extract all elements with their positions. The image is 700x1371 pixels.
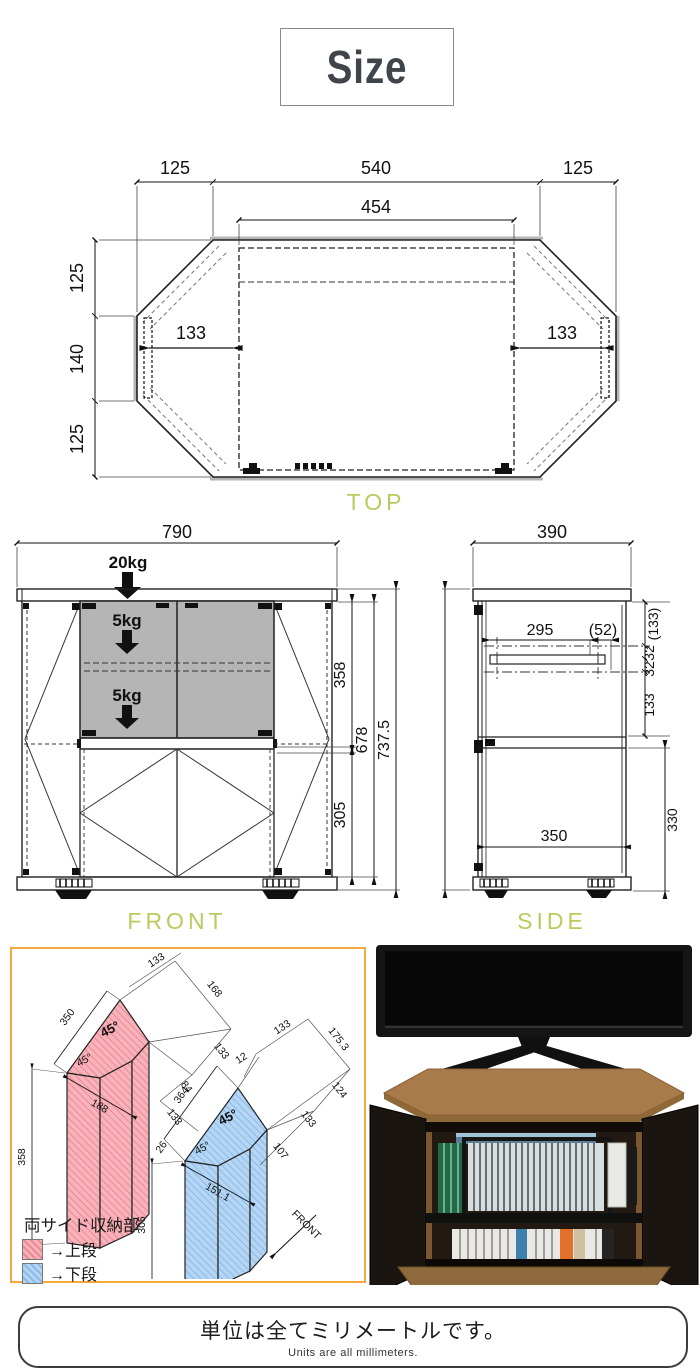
units-note-jp: 単位は全てミリメートルです。 [200, 1315, 506, 1345]
dim-depth-mid: 140 [67, 344, 87, 374]
dvd-row [468, 1143, 604, 1211]
units-note-banner: 単位は全てミリメートルです。 Units are all millimeters… [18, 1306, 688, 1368]
lower-edge-s: 26 [153, 1139, 170, 1156]
top-view-linework [92, 179, 618, 479]
dim-top-center: 540 [361, 158, 391, 178]
dim-depth-top: 125 [67, 263, 87, 293]
upper-f4: 133 [164, 1107, 184, 1128]
dim-seg-32b: 32 [641, 661, 657, 677]
cabinet-top [384, 1069, 684, 1115]
page: Size [0, 0, 700, 1371]
units-note-en: Units are all millimeters. [288, 1347, 418, 1359]
size-title-box: Size [280, 28, 454, 106]
load-lower: 5kg [112, 686, 141, 705]
dim-pocket-right: 133 [547, 323, 577, 343]
side-view-label: SIDE [517, 908, 587, 934]
dim-rail-gap: (52) [589, 622, 617, 639]
upper-red-swatch [22, 1239, 43, 1260]
lower-f3: 133 [298, 1109, 318, 1130]
lower-f4: 107 [270, 1141, 290, 1162]
lower-top-w: 133 [272, 1018, 293, 1038]
white-console [608, 1143, 626, 1207]
front-view-drawing: 790 20kg 5kg 5kg 358 305 678 737.5 FRONT [0, 525, 460, 940]
left-door [370, 1105, 426, 1285]
dim-pocket-left: 133 [176, 323, 206, 343]
lower-f2: 124 [329, 1080, 349, 1101]
iso-lower-prism [152, 1019, 350, 1279]
middle-shelf [426, 1213, 642, 1223]
upper-top-w: 133 [146, 951, 167, 971]
dim-rail: 295 [527, 622, 554, 639]
dim-upper-height: 358 [332, 662, 349, 689]
top-view-label: TOP [347, 489, 406, 515]
upper-edge-len: 350 [58, 1006, 78, 1027]
side-view-drawing: 390 295 (52) 350 (133) 32 32 133 330 SID… [440, 525, 700, 940]
dim-top-right: 125 [563, 158, 593, 178]
front-view-linework [17, 543, 400, 899]
cabinet-base [398, 1267, 670, 1285]
dim-side-depth: 390 [537, 525, 567, 542]
lower-top-s: 12 [233, 1050, 249, 1067]
top-view-drawing: 125 540 125 454 125 140 125 133 133 TOP [0, 140, 700, 525]
legend-upper-label: →上段 [49, 1237, 97, 1261]
dim-inner-width: 454 [361, 197, 391, 217]
legend-lower-label: →下段 [49, 1261, 97, 1285]
lower-f1: 175.3 [326, 1025, 352, 1053]
dim-seg-32a: 32 [641, 645, 657, 661]
dim-front-width: 790 [162, 525, 192, 542]
page-title: Size [327, 40, 408, 94]
load-upper: 5kg [112, 611, 141, 630]
upper-f2: 133 [211, 1041, 231, 1062]
iso-labels: 45° 45° 350 358 188 133 168 133 84 133 4… [16, 951, 351, 1243]
upper-f1: 168 [204, 979, 224, 1000]
dim-top-left: 125 [160, 158, 190, 178]
side-storage-diagram-box: 45° 45° 350 358 188 133 168 133 84 133 4… [10, 947, 366, 1283]
dim-seg-133: 133 [641, 693, 657, 717]
upper-height: 358 [16, 1148, 28, 1166]
side-view-labels: 390 295 (52) 350 (133) 32 32 133 330 SID… [517, 525, 680, 934]
right-door [642, 1105, 698, 1285]
dim-lower-height: 305 [332, 802, 349, 829]
dim-inner-height: 678 [354, 727, 371, 754]
dim-seg-top: (133) [645, 608, 661, 641]
product-photo [368, 945, 700, 1285]
lower-blue-swatch [22, 1263, 43, 1284]
front-view-label: FRONT [127, 908, 226, 934]
legend-title: 両サイド収納部 [24, 1212, 140, 1236]
dim-depth-bottom: 125 [67, 424, 87, 454]
dim-inner-depth: 350 [541, 828, 568, 845]
lower-front-label: FRONT [289, 1208, 323, 1242]
dim-side-lower: 330 [664, 808, 680, 832]
legend-lower-row: →下段 [22, 1261, 97, 1285]
dim-total-height: 737.5 [376, 720, 393, 760]
load-top: 20kg [109, 553, 148, 572]
legend-upper-row: →上段 [22, 1237, 97, 1261]
